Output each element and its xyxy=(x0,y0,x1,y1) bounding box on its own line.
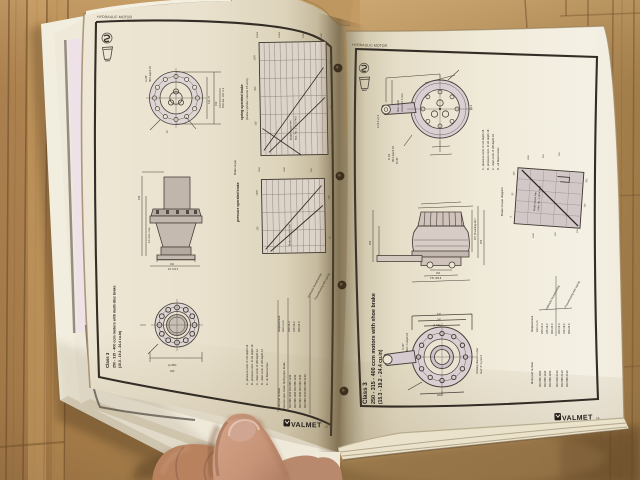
svg-text:410: 410 xyxy=(437,313,442,316)
svg-text:Displacement: Displacement xyxy=(530,315,534,332)
svg-text:D - drain conn. R 3/8 depth 12: D - drain conn. R 3/8 depth 12 xyxy=(260,348,264,385)
svg-text:(15.3 - 19.2 - 24.4 cu.in): (15.3 - 19.2 - 24.4 cu.in) xyxy=(118,331,122,368)
svg-text:clearance 5 mm: clearance 5 mm xyxy=(400,94,404,112)
svg-text:190: 190 xyxy=(214,101,218,106)
svg-text:A - pressure conn. R 1/2 depth: A - pressure conn. R 1/2 depth 16 xyxy=(245,344,249,385)
svg-text:250 15.3: 250 15.3 xyxy=(287,321,291,332)
svg-text:403 566 1150: 403 566 1150 xyxy=(548,370,552,387)
svg-text:A - pressure conn. R 1/2 depth: A - pressure conn. R 1/2 depth 18 xyxy=(481,129,485,170)
svg-text:Pilot dia. 152 -0.2: Pilot dia. 152 -0.2 xyxy=(221,87,225,108)
svg-text:HYDRAULIC MOTOR: HYDRAULIC MOTOR xyxy=(97,15,133,19)
svg-text:1000: 1000 xyxy=(284,166,286,172)
svg-text:(ø 336): (ø 336) xyxy=(433,324,441,327)
svg-text:ø 13.5 +0.2: ø 13.5 +0.2 xyxy=(376,114,380,128)
svg-text:2000: 2000 xyxy=(259,166,261,172)
svg-text:Brake pressure bar: Brake pressure bar xyxy=(287,224,291,246)
svg-text:1000: 1000 xyxy=(256,190,259,196)
svg-text:12 conn. max: 12 conn. max xyxy=(147,227,151,243)
svg-text:164: 164 xyxy=(137,195,141,200)
svg-text:162: 162 xyxy=(170,263,175,266)
svg-text:10000: 10000 xyxy=(279,31,281,38)
svg-text:1500: 1500 xyxy=(533,232,535,238)
svg-text:R 1/2: R 1/2 xyxy=(387,153,391,160)
svg-text:feed "A" to port A: feed "A" to port A xyxy=(480,355,483,374)
svg-text:Displacement: Displacement xyxy=(277,315,281,332)
svg-text:Brake torque: Brake torque xyxy=(233,160,237,175)
svg-text:C - drain conn. R 3/8 depth 12: C - drain conn. R 3/8 depth 12 xyxy=(255,348,259,385)
svg-text:pressure operated brake: pressure operated brake xyxy=(236,182,240,222)
svg-text:S=45°: S=45° xyxy=(402,343,405,350)
svg-text:spring operated brake: spring operated brake xyxy=(240,84,244,120)
svg-text:B=45°: B=45° xyxy=(395,157,399,164)
svg-text:(15.3 - 19.2 - 24.4 cu.in): (15.3 - 19.2 - 24.4 cu.in) xyxy=(378,349,384,404)
svg-text:B - pressure conn. R 1/2 depth: B - pressure conn. R 1/2 depth 16 xyxy=(250,344,254,385)
svg-text:F9: 161.6: F9: 161.6 xyxy=(168,268,179,271)
svg-text:315 19.2: 315 19.2 xyxy=(292,321,296,332)
svg-text:Mot. No. 1 1975 Nr.5: Mot. No. 1 1975 Nr.5 xyxy=(293,115,297,140)
svg-text:403 590 1190 403 590 1140: 403 590 1190 403 590 1140 xyxy=(298,374,302,408)
svg-text:Pressure oper. brake Spring o: Pressure oper. brake Spring oper. brake xyxy=(282,362,286,410)
svg-text:100: 100 xyxy=(256,226,259,231)
svg-text:Max. shaft: Max. shaft xyxy=(396,100,400,112)
svg-text:250 - 315 - 400 ccm motors wit: 250 - 315 - 400 ccm motors with multi-di… xyxy=(113,286,117,369)
svg-text:1000: 1000 xyxy=(253,55,256,61)
svg-text:A=28°: A=28° xyxy=(144,75,148,82)
svg-text:400 24.4: 400 24.4 xyxy=(567,323,571,334)
svg-text:25.4: 25.4 xyxy=(469,104,473,110)
svg-text:E - air bleed screw: E - air bleed screw xyxy=(265,363,269,385)
svg-text:100: 100 xyxy=(254,121,257,126)
svg-text:403 529 2130: 403 529 2130 xyxy=(555,370,559,387)
svg-text:(ø 456): (ø 456) xyxy=(168,363,176,367)
svg-text:C - drain conn. R 3/8 depth 18: C - drain conn. R 3/8 depth 18 xyxy=(491,133,495,170)
svg-text:167 (mounting dim): 167 (mounting dim) xyxy=(474,218,477,240)
svg-text:ccm cu.in: ccm cu.in xyxy=(281,320,285,332)
svg-text:Rotating direction when: Rotating direction when xyxy=(476,347,479,374)
svg-text:1000: 1000 xyxy=(528,154,530,160)
svg-text:(brake cylinder volume 15 ccm): (brake cylinder volume 15 ccm) xyxy=(245,78,249,120)
svg-text:403 565 1150 403 565 1140: 403 565 1150 403 565 1140 xyxy=(288,374,292,408)
svg-text:250 15.3: 250 15.3 xyxy=(540,323,544,334)
svg-text:M12 depth 18: M12 depth 18 xyxy=(391,146,395,162)
svg-text:460: 460 xyxy=(170,369,175,373)
svg-text:2"B: 360-8: 2"B: 360-8 xyxy=(430,277,442,280)
svg-text:D - air bleed screw: D - air bleed screw xyxy=(496,148,500,170)
svg-text:403 565 2130: 403 565 2130 xyxy=(560,370,564,387)
svg-text:Motor part number: Motor part number xyxy=(530,362,534,384)
svg-text:131.75: 131.75 xyxy=(207,96,211,104)
svg-text:Brake torque diagram: Brake torque diagram xyxy=(500,187,504,216)
svg-text:315 19.2: 315 19.2 xyxy=(562,323,566,334)
svg-text:M16 LS depth 24: M16 LS depth 24 xyxy=(406,332,409,352)
svg-text:262: 262 xyxy=(436,272,441,275)
svg-text:315 19.2: 315 19.2 xyxy=(545,323,549,334)
svg-text:400 24.4: 400 24.4 xyxy=(297,321,301,332)
svg-text:255: 255 xyxy=(480,239,483,244)
svg-text:M10 depth 16: M10 depth 16 xyxy=(148,66,152,82)
svg-text:403 565 1130: 403 565 1130 xyxy=(543,370,547,387)
svg-text:400 24.4: 400 24.4 xyxy=(550,323,554,334)
svg-text:Brake torque Nm: Brake torque Nm xyxy=(288,120,292,140)
svg-text:400: 400 xyxy=(437,394,442,397)
svg-text:Class 3: Class 3 xyxy=(105,352,110,368)
svg-text:500: 500 xyxy=(254,86,257,91)
svg-text:Motor part number: Motor part number xyxy=(277,388,281,410)
svg-text:403 566 2130: 403 566 2130 xyxy=(565,370,569,387)
svg-text:403 565 1150: 403 565 1150 xyxy=(538,370,542,387)
svg-text:403 565 2150 403 565 2140: 403 565 2150 403 565 2140 xyxy=(303,374,307,408)
svg-text:15000: 15000 xyxy=(257,31,259,38)
svg-text:B - pressure conn. R 1/2 depth: B - pressure conn. R 1/2 depth 18 xyxy=(486,129,490,170)
svg-text:ccm cu.in: ccm cu.in xyxy=(535,320,539,332)
svg-text:360: 360 xyxy=(437,319,442,322)
svg-text:250 15.3: 250 15.3 xyxy=(557,323,561,334)
svg-text:403 566 1160 403 566 1140: 403 566 1160 403 566 1140 xyxy=(293,374,297,408)
svg-text:5000: 5000 xyxy=(303,32,305,38)
